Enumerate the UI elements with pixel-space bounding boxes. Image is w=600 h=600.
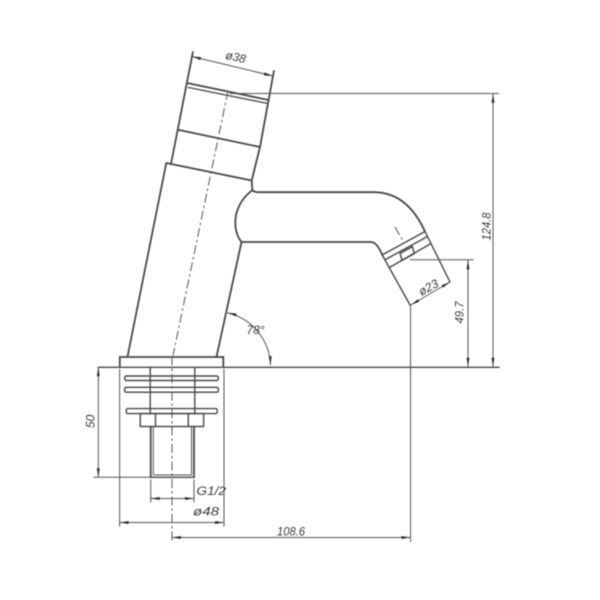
svg-text:49.7: 49.7: [453, 300, 467, 323]
svg-text:ø48: ø48: [193, 505, 219, 519]
svg-text:ø38: ø38: [224, 48, 247, 66]
svg-text:G1/2: G1/2: [197, 484, 227, 498]
svg-text:ø23: ø23: [416, 276, 441, 298]
svg-text:50: 50: [84, 414, 98, 428]
svg-text:108.6: 108.6: [277, 525, 305, 539]
svg-text:124.8: 124.8: [480, 212, 494, 240]
svg-text:78°: 78°: [247, 323, 265, 337]
